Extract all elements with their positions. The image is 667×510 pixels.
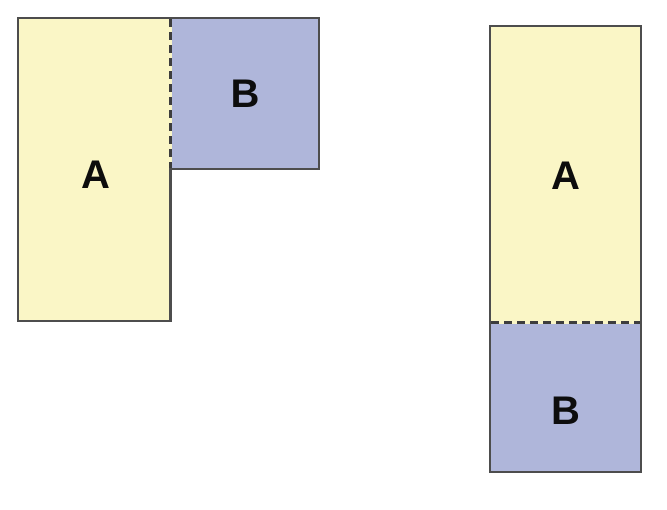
shared-edge-dashed-line-vertical xyxy=(169,19,172,168)
region-a-right: A xyxy=(489,25,642,324)
region-b-left: B xyxy=(172,17,320,170)
region-a-left: A xyxy=(17,17,172,322)
region-b-left-label: B xyxy=(231,74,260,114)
region-a-right-edge-segment xyxy=(169,168,172,322)
region-b-right-label: B xyxy=(551,391,580,431)
region-a-left-label: A xyxy=(81,155,110,195)
region-b-right: B xyxy=(489,324,642,473)
region-a-right-label: A xyxy=(551,156,580,196)
shared-edge-dashed-line-horizontal xyxy=(491,321,640,324)
diagram-canvas: A B A B xyxy=(0,0,667,510)
